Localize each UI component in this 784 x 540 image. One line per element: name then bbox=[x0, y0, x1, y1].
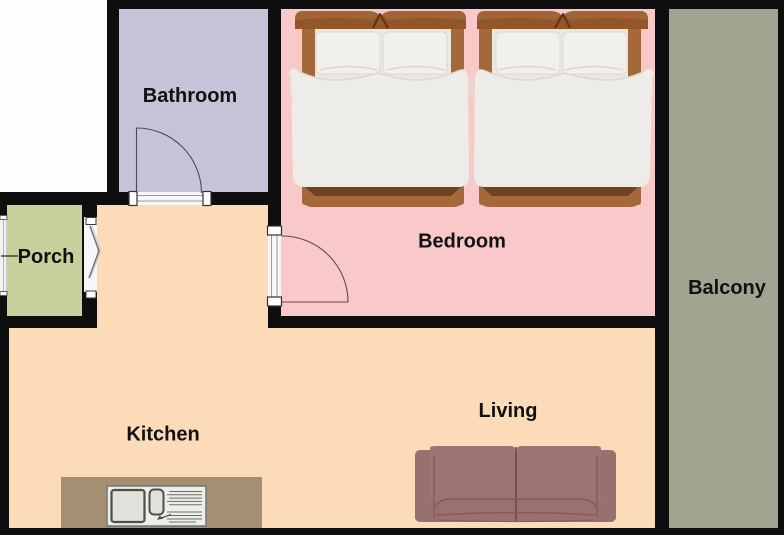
svg-text:Bathroom: Bathroom bbox=[143, 85, 237, 107]
svg-text:Living: Living bbox=[479, 400, 538, 422]
svg-text:Porch: Porch bbox=[18, 246, 75, 268]
svg-text:Bedroom: Bedroom bbox=[418, 231, 506, 253]
svg-text:Balcony: Balcony bbox=[688, 277, 767, 299]
svg-text:Kitchen: Kitchen bbox=[126, 424, 199, 446]
